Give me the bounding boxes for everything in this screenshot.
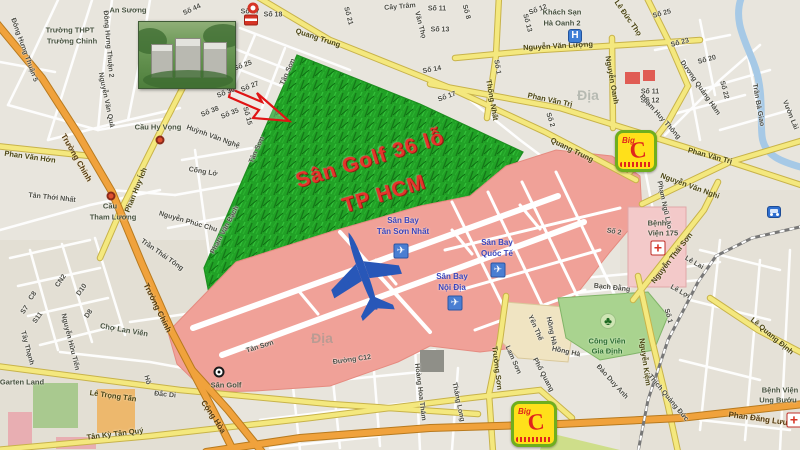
gray-block: [420, 350, 444, 372]
red-block: [643, 70, 655, 81]
green-block: [33, 383, 78, 428]
apartment-photo-inset: [138, 21, 236, 89]
photo-trees: [143, 70, 233, 89]
red-block: [625, 72, 640, 84]
orange-block: [97, 389, 135, 433]
map-base-layer: [0, 0, 800, 450]
map-canvas: An SươngTrường THPTTrường ChinhĐông Hưng…: [0, 0, 800, 450]
